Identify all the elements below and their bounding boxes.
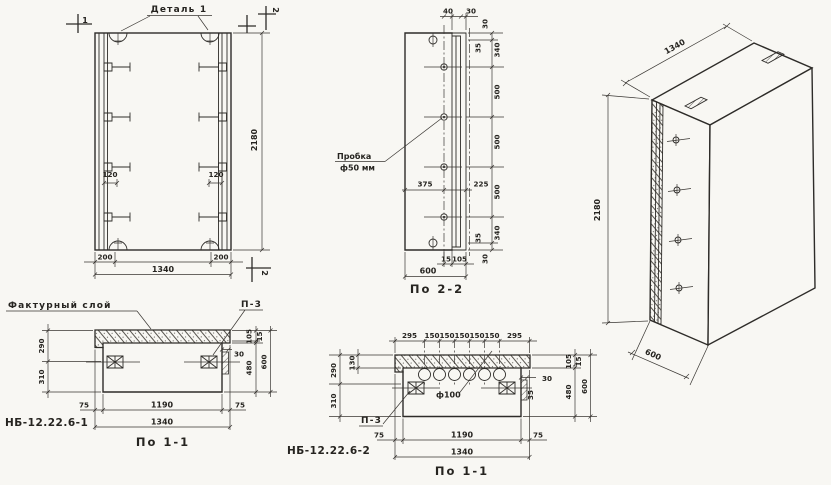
dim-105: 105 xyxy=(452,255,467,264)
dim-edge-left: 200 xyxy=(97,253,112,262)
iso-height-dim-lines xyxy=(602,93,649,325)
section-2-2-title: По 2-2 xyxy=(410,282,464,296)
dim-1340: 1340 xyxy=(151,418,174,427)
dim-600: 600 xyxy=(260,354,269,369)
dim-top-30: 30 xyxy=(466,7,476,16)
isometric-view: 1340 2180 600 xyxy=(593,23,815,385)
dim-edge-right: 200 xyxy=(213,253,228,262)
chain-35-bottom: 35 xyxy=(474,233,483,243)
dim-height: 2180 xyxy=(250,128,259,151)
dim-105: 105 xyxy=(245,329,254,344)
mid-dim-lines xyxy=(402,188,472,192)
chain-150-a: 150 xyxy=(424,331,439,340)
dim-75-left: 75 xyxy=(374,431,384,440)
edge-pocket xyxy=(222,352,229,374)
dim-310: 310 xyxy=(37,369,46,384)
dim-35: 35 xyxy=(526,390,535,400)
dim-375: 375 xyxy=(417,180,432,189)
dim-width-600: 600 xyxy=(420,267,437,276)
left-dim-lines xyxy=(329,349,401,422)
chain-150-c: 150 xyxy=(454,331,469,340)
dim-30: 30 xyxy=(542,374,552,383)
dim-15: 15 xyxy=(574,356,583,366)
section-2-2-view: 40 30 30 35 340 500 500 500 340 35 30 37… xyxy=(335,7,504,297)
texture-slab xyxy=(395,355,530,372)
dim-225: 225 xyxy=(473,180,488,189)
hook-dim-lines xyxy=(102,179,224,187)
texture-layer-label: Фактурный слой xyxy=(8,301,112,311)
dim-15: 15 xyxy=(255,331,264,341)
core-hole xyxy=(434,369,446,381)
panel-mark-1: НБ-12.22.6-1 xyxy=(5,417,88,429)
chain-35-top: 35 xyxy=(474,43,483,53)
chain-150-d: 150 xyxy=(469,331,484,340)
dim-600: 600 xyxy=(580,379,589,394)
plug-label-line2: ф50 мм xyxy=(340,164,375,173)
plate-p3-label: П-3 xyxy=(241,300,262,310)
core-hole xyxy=(479,369,491,381)
dim-15: 15 xyxy=(441,255,451,264)
dim-310: 310 xyxy=(329,393,338,408)
chain-150-e: 150 xyxy=(484,331,499,340)
section-cut-marks xyxy=(66,6,276,282)
engineering-drawing-sheet: 120 120 1 2 2 Деталь 1 2180 200 200 1340… xyxy=(0,0,831,485)
core-hole xyxy=(494,369,506,381)
facade-layer-lines xyxy=(452,33,466,250)
dim-1190: 1190 xyxy=(451,431,474,440)
dim-75-left: 75 xyxy=(79,401,89,410)
dim-width: 1340 xyxy=(152,265,175,274)
hole-diameter-label: ф100 xyxy=(436,391,461,400)
chain-295-left: 295 xyxy=(402,331,417,340)
left-dim-lines xyxy=(42,324,101,398)
front-elevation-view: 120 120 1 2 2 Деталь 1 2180 200 200 1340 xyxy=(66,5,280,282)
dim-top-40: 40 xyxy=(443,7,453,16)
section-1-1-left-title: По 1-1 xyxy=(136,435,190,449)
dim-480: 480 xyxy=(564,384,573,399)
section-1-1-mid-title: По 1-1 xyxy=(435,464,489,478)
chain-150-b: 150 xyxy=(439,331,454,340)
rib-body-outline xyxy=(103,343,222,392)
dim-75-right: 75 xyxy=(533,431,543,440)
dim-130: 130 xyxy=(348,355,357,370)
chain-500-b: 500 xyxy=(493,134,502,149)
dim-30: 30 xyxy=(234,350,244,359)
panel-mark-2: НБ-12.22.6-2 xyxy=(287,445,370,457)
drawing-canvas: 120 120 1 2 2 Деталь 1 2180 200 200 1340… xyxy=(0,0,831,485)
chain-340-bottom: 340 xyxy=(493,225,502,240)
chain-500-a: 500 xyxy=(493,84,502,99)
detail-callout-label: Деталь 1 xyxy=(151,5,208,15)
plug-label-line1: Пробка xyxy=(337,151,371,161)
dim-1340: 1340 xyxy=(451,448,474,457)
texture-label-leader xyxy=(6,311,151,329)
dim-hook-left: 120 xyxy=(102,170,117,179)
core-hole xyxy=(419,369,431,381)
dim-105: 105 xyxy=(564,354,573,369)
dim-75-right: 75 xyxy=(235,401,245,410)
section-mark-2-bottom-label: 2 xyxy=(260,270,269,276)
chain-295-right: 295 xyxy=(507,331,522,340)
anchor-hooks xyxy=(104,63,227,221)
core-hole xyxy=(449,369,461,381)
dim-hook-right: 120 xyxy=(208,170,223,179)
texture-slab xyxy=(95,330,230,348)
iso-dim-width: 1340 xyxy=(663,37,687,56)
chain-500-c: 500 xyxy=(493,184,502,199)
detail-callout-leaders xyxy=(121,16,212,32)
chain-30-bottom: 30 xyxy=(481,254,490,264)
dim-290: 290 xyxy=(329,363,338,378)
dim-290: 290 xyxy=(37,338,46,353)
chain-30-top: 30 xyxy=(481,19,490,29)
section-1-1-left-view: 290 310 105 15 480 600 30 75 1190 75 134… xyxy=(5,300,277,449)
dim-1190: 1190 xyxy=(151,401,174,410)
top-dim-lines xyxy=(440,13,478,30)
section-1-1-mid-view: 295 150 150 150 150 150 295 130 290 310 … xyxy=(287,331,597,478)
chain-340-top: 340 xyxy=(493,42,502,57)
section-mark-1-label: 1 xyxy=(82,16,88,25)
plate-p3-label: П-3 xyxy=(361,416,382,426)
iso-dim-height: 2180 xyxy=(593,198,602,221)
dim-480: 480 xyxy=(245,360,254,375)
section-mark-2-top-label: 2 xyxy=(271,7,280,13)
